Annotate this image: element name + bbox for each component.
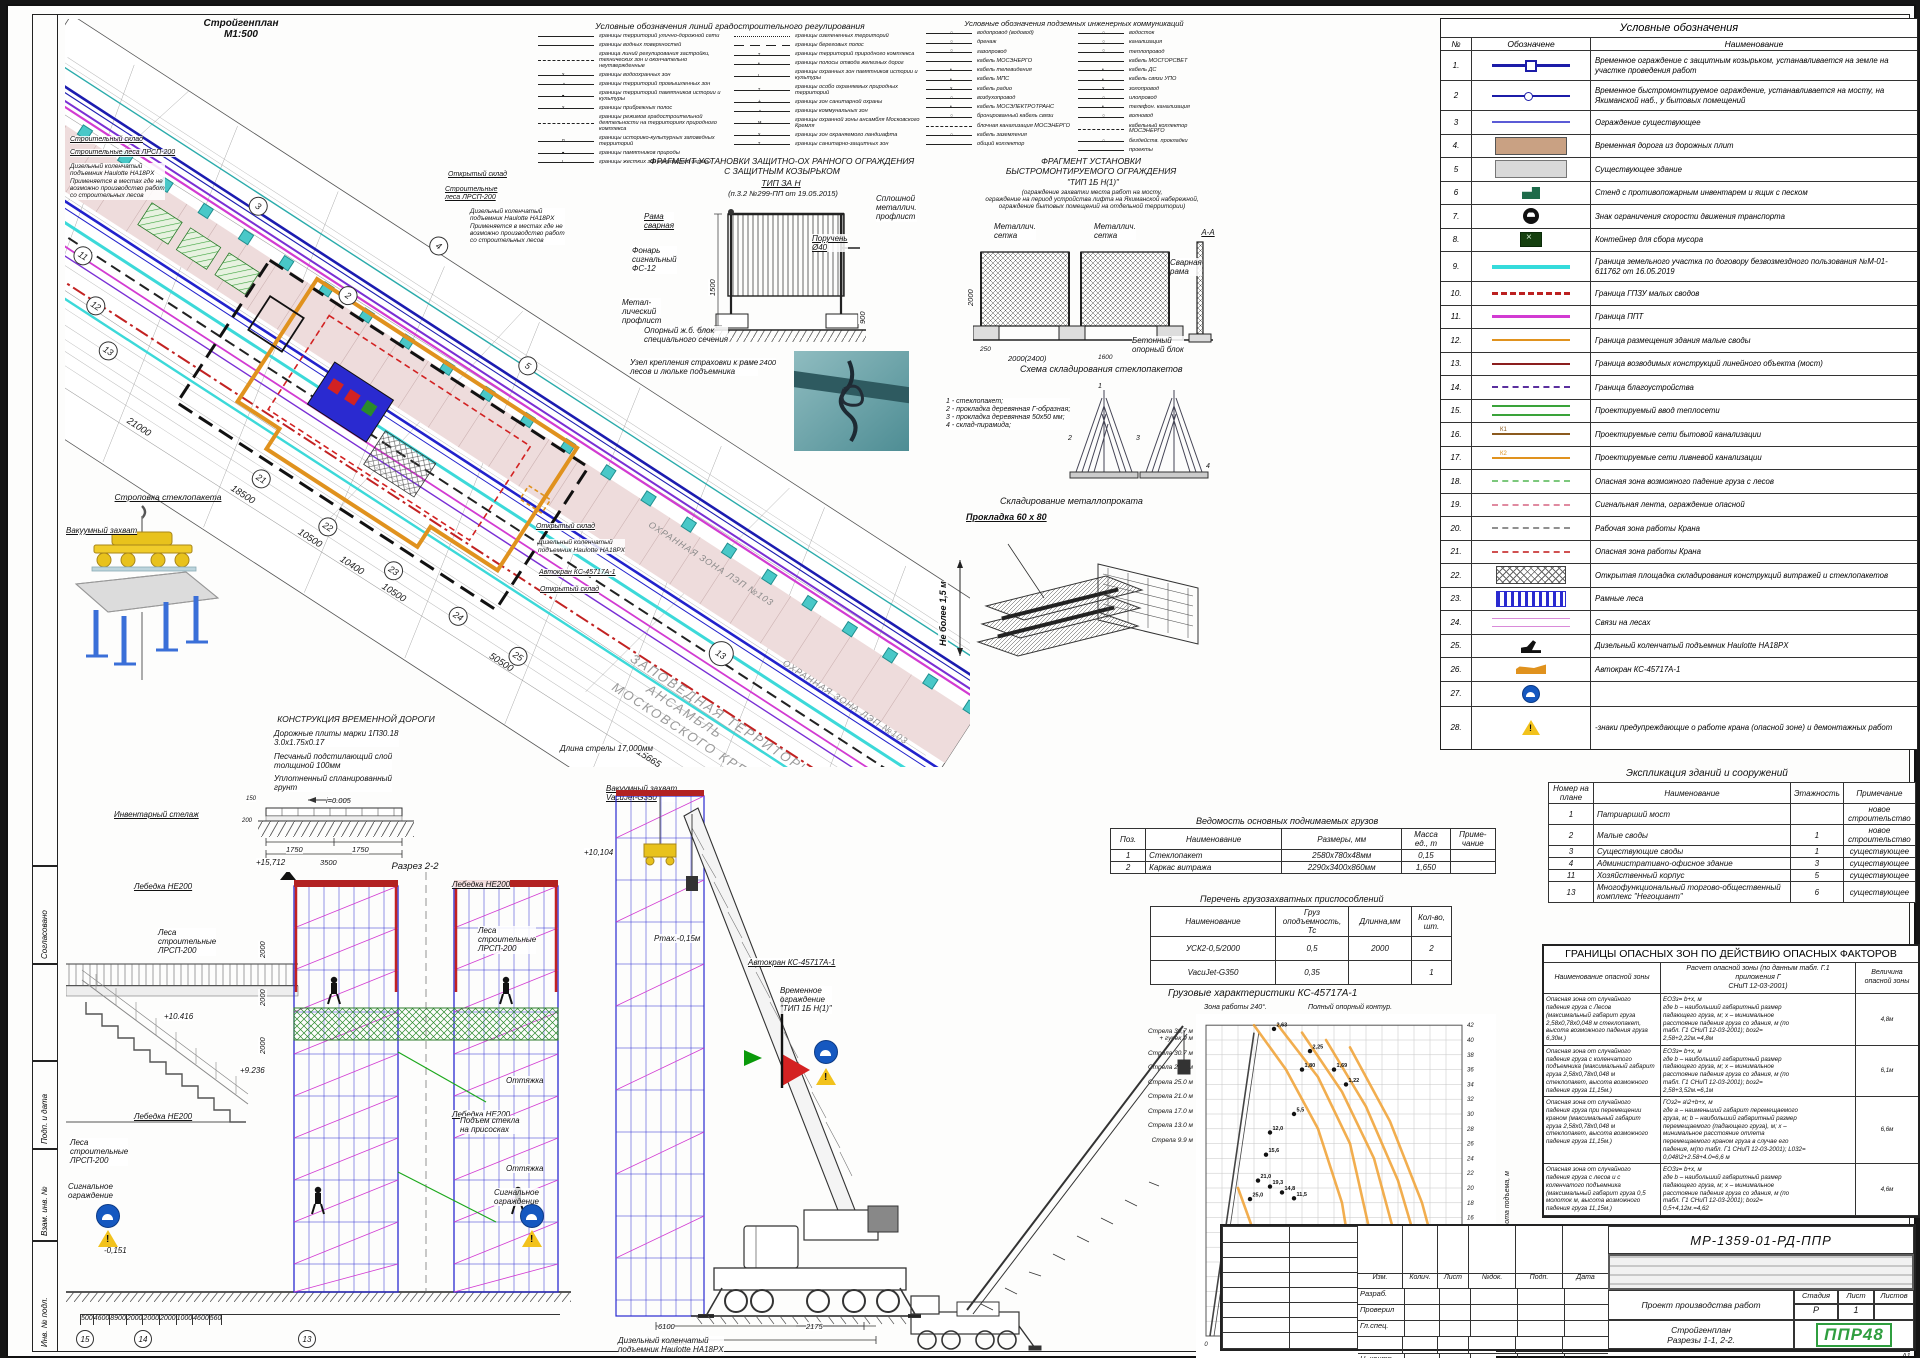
- ppe-sign-icon: [96, 1204, 120, 1228]
- legend-item: границы территорий памятников истории и …: [538, 91, 726, 103]
- sidebar-label: Инв. № подл.: [40, 1297, 49, 1347]
- legend-item: водосток: [1078, 31, 1222, 37]
- loads-col-header: Масса ед., т: [1402, 829, 1450, 850]
- legend-table-row: 4. Временная дорога из дорожных плит: [1441, 134, 1917, 158]
- axis-marker-15: 15: [76, 1330, 94, 1348]
- legend-table-row: 2 Временное быстромонтируемое ограждение…: [1441, 80, 1917, 110]
- explication-col-header: Наименование: [1594, 783, 1791, 804]
- legend-item: газопровод: [926, 50, 1070, 56]
- axis-marker-14: 14: [134, 1330, 152, 1348]
- road-d200: 200: [242, 818, 252, 824]
- crane-chart-subtitle2: Полный опорный контур.: [1308, 1004, 1392, 1011]
- line-sample-icon: [734, 45, 790, 46]
- legend-table-row: 13. Граница возводимых конструкций линей…: [1441, 352, 1917, 376]
- legend-table-row: 27.: [1441, 681, 1917, 706]
- stamp-sign-grid: Изм. Колич. Лист №док. Подп. Дата Разраб…: [1358, 1226, 1608, 1349]
- svg-text:32: 32: [1467, 1097, 1474, 1103]
- sheet-format: А1: [1902, 1353, 1911, 1358]
- line-sample-icon: [926, 33, 972, 34]
- stage-value: Р: [1794, 1304, 1838, 1320]
- celev-dim-6100: 6100: [658, 1322, 675, 1331]
- guy-label-1: Оттяжка: [506, 1076, 543, 1085]
- sheet-subtitle: Стройгенплан Разрезы 1-1, 2-2.: [1608, 1320, 1794, 1349]
- svg-text:1: 1: [1098, 383, 1102, 390]
- legend-table-row: 10. Граница ГПЗУ малых сводов: [1441, 281, 1917, 305]
- svg-text:26: 26: [1466, 1142, 1474, 1148]
- road-d1750b: 1750: [352, 845, 369, 854]
- rigging-col-header: Кол-во, шт.: [1412, 907, 1452, 937]
- glass-storage-notes: 1 - стеклопакет; 2 - прокладка деревянна…: [946, 398, 1070, 430]
- svg-text:18: 18: [1467, 1201, 1474, 1207]
- sidebar-cell-vzam: Взам. инв. №: [32, 1149, 58, 1241]
- legend-item: границы охранной зоны ансамбля Московско…: [734, 118, 922, 130]
- legend-item: границы охранных зон памятников истории …: [734, 70, 922, 82]
- legend-item: границы территорий природного комплекса: [734, 52, 922, 58]
- dim-value: 2000: [159, 1315, 176, 1325]
- title-block: Изм. Колич. Лист №док. Подп. Дата Разраб…: [1220, 1224, 1916, 1351]
- line-sample-icon: [1078, 117, 1124, 118]
- legend-symbol-icon: [1492, 457, 1570, 459]
- line-sample-icon: [538, 36, 594, 37]
- stamp-left-grid: [1222, 1226, 1358, 1349]
- legend-table-row: 7. Знак ограничения скорости движения тр…: [1441, 204, 1917, 228]
- ppe-sign-icon3: [814, 1040, 838, 1064]
- road-plates-label: Дорожные плиты марки 1П30.18 3.0х1.75х0.…: [274, 729, 399, 747]
- rmax-label: Рmax.-0,15м: [654, 934, 700, 943]
- legend-symbol-icon: [1523, 208, 1539, 224]
- callout-open-store-mid2: Открытый склад: [540, 586, 599, 594]
- table-row: УСК2-0,5/20000,520002: [1151, 937, 1452, 961]
- line-sample-icon: [538, 153, 594, 154]
- svg-text:1,69: 1,69: [1337, 1063, 1348, 1069]
- loads-col-header: Размеры, мм: [1282, 829, 1402, 850]
- table-row: 1Патриарший мостновое строительство: [1549, 804, 1916, 825]
- frag2-dim3: 2000: [966, 289, 975, 306]
- legend-table-row: 3 Ограждение существующее: [1441, 110, 1917, 134]
- winch-label-1: Лебедка НЕ200: [134, 882, 192, 891]
- legend-table-row: 12. Граница размещения здания малые свод…: [1441, 328, 1917, 352]
- sidebar-cell-inv: Инв. № подл.: [32, 1241, 58, 1352]
- frag2-frame-label: Сварная рама: [1170, 258, 1202, 276]
- table-row: VacuJet-G3500,351: [1151, 961, 1452, 985]
- table-row: 1Стеклопакет2580х780х48мм0,15: [1111, 850, 1496, 862]
- legend-item: водопровод (водовод): [926, 31, 1070, 37]
- callout-construction-store: Строительный склад: [70, 136, 143, 144]
- dim-value: 8900: [109, 1315, 126, 1325]
- line-sample-icon: [734, 102, 790, 103]
- line-sample-icon: [1078, 80, 1124, 81]
- sec22-dim2000c: 2000: [258, 1037, 267, 1054]
- legend-table-row: 28. -знаки предупреждающие о работе кран…: [1441, 706, 1917, 749]
- dim-value: 4600: [192, 1315, 209, 1325]
- line-sample-icon: [1078, 129, 1124, 130]
- line-sample-icon: [1078, 52, 1124, 53]
- frag1-note: (п.3.2 №299-ПП от 19.05.2015): [698, 189, 868, 198]
- level-low: +9.236: [240, 1066, 265, 1075]
- road-soil-label: Уплотненный спланированный грунт: [274, 774, 392, 792]
- danger-row: Опасная зона от случайного падения груза…: [1544, 994, 1918, 1046]
- danger-row: Опасная зона от случайного падения груза…: [1544, 1046, 1918, 1098]
- legend-table-row: 23. Рамные леса: [1441, 587, 1917, 611]
- line-sample-icon: [926, 144, 972, 145]
- line-sample-icon: [538, 123, 594, 124]
- rigging-table: НаименованиеГруз оподъемность, ТсДлинна,…: [1150, 906, 1452, 985]
- legend-item: границы озелененных территорий: [734, 34, 922, 40]
- frag1-solid-label: Сплошной металлич. профлист: [876, 194, 917, 222]
- level-bottom: -0,151: [104, 1246, 127, 1255]
- stage-header: Стадия: [1794, 1290, 1838, 1304]
- line-sample-icon: [734, 55, 790, 56]
- line-sample-icon: [1078, 107, 1124, 108]
- stamp-role: Разраб.: [1358, 1289, 1405, 1304]
- frag1-profile-label: Метал- лический профлист: [622, 298, 661, 326]
- rigging-col-header: Наименование: [1151, 907, 1276, 937]
- frag1-frame-label: Рама сварная: [644, 212, 674, 230]
- explication-title: Экспликация зданий и сооружений: [1626, 768, 1788, 779]
- frag2-mesh-label2: Металлич. сетка: [1094, 222, 1136, 240]
- sidebar-empty-cell: [32, 14, 58, 866]
- legend-table-row: 5 Существующее здание: [1441, 157, 1917, 181]
- line-sample-icon: [1078, 141, 1124, 142]
- svg-text:2,25: 2,25: [1313, 1045, 1324, 1051]
- line-sample-icon: [538, 162, 594, 163]
- legend-symbol-icon: [1522, 720, 1540, 735]
- callout-lift-left: Дизельный коленчатый подъемник Haulotte …: [70, 163, 165, 200]
- legend-item: бездейств. прокладки: [1078, 139, 1222, 145]
- line-sample-icon: [926, 98, 972, 99]
- legend-item: кабель МПС: [926, 77, 1070, 83]
- axis-marker-13: 13: [298, 1330, 316, 1348]
- legend-symbol-icon: [1522, 685, 1540, 703]
- legend-table-row: 26. Автокран КС-45717А-1: [1441, 657, 1917, 681]
- plan-title: СтройгенпланМ1:500: [176, 18, 306, 40]
- legend-item: кабель МОСЭНЕРГО: [926, 59, 1070, 65]
- legend-item: границы санитарно-защитных зон: [734, 142, 922, 148]
- table-row: 2Малые своды1новое строительство: [1549, 825, 1916, 846]
- legend-item: канализация: [1078, 40, 1222, 46]
- legend-symbol-icon: [1492, 504, 1570, 506]
- svg-text:34: 34: [1467, 1082, 1474, 1088]
- frag2-section-mark: А-А: [1188, 228, 1228, 237]
- legend-item: волновод: [1078, 114, 1222, 120]
- svg-text:20: 20: [1466, 1186, 1474, 1192]
- signal-fence-label-1: Сигнальное ограждение: [68, 1182, 113, 1200]
- crane-label: Автокран КС-45717А-1: [748, 958, 836, 967]
- symbols-legend-table: Условные обозначения № Обозначене Наимен…: [1440, 18, 1918, 750]
- legend-table-row: 11. Граница ППТ: [1441, 305, 1917, 329]
- legend-table-row: 18. Опасная зона возможного падение груз…: [1441, 469, 1917, 493]
- line-sample-icon: [734, 76, 790, 77]
- sheets-value: [1874, 1304, 1914, 1320]
- plan-scale: М1:500: [224, 29, 258, 40]
- line-sample-icon: [1078, 98, 1124, 99]
- line-sample-icon: [926, 80, 972, 81]
- svg-text:2: 2: [1067, 435, 1072, 442]
- rigging-col-header: Длинна,мм: [1349, 907, 1412, 937]
- svg-text:1,22: 1,22: [1349, 1078, 1360, 1084]
- legend-table-row: 25. Дизельный коленчатый подъемник Haulo…: [1441, 634, 1917, 658]
- legend-item: теплопровод: [1078, 50, 1222, 56]
- explication-table: Номер на планеНаименованиеЭтажностьПриме…: [1548, 782, 1916, 903]
- legend-symbol-icon: [1496, 566, 1566, 584]
- legend-symbol-icon: [1492, 363, 1570, 365]
- legend-item: границы прибрежных полос: [538, 106, 726, 112]
- table-row: 11Хозяйственный корпус5существующее: [1549, 870, 1916, 882]
- strap-node-caption: Узел крепления страховки к раме лесов и …: [630, 358, 758, 376]
- svg-text:19,3: 19,3: [1273, 1180, 1284, 1186]
- callout-crane-mid: Автокран КС-45717А-1: [539, 569, 616, 577]
- legend-table-row: 21. Опасная зона работы Крана: [1441, 540, 1917, 564]
- svg-text:3: 3: [1136, 435, 1140, 442]
- line-sample-icon: [926, 70, 972, 71]
- svg-text:25,0: 25,0: [1253, 1193, 1264, 1199]
- callout-lift-right: Дизельный коленчатый подъемник Haulotte …: [470, 208, 565, 245]
- legend-item: кабель МОСГОРСВЕТ: [1078, 59, 1222, 65]
- legend-item: границы полосы отвода железных дорог: [734, 61, 922, 67]
- line-sample-icon: [734, 64, 790, 65]
- legend-item: кабель заземления: [926, 133, 1070, 139]
- svg-text:15,6: 15,6: [1269, 1148, 1280, 1154]
- frag1-type: ТИП ЗА Н: [736, 178, 826, 188]
- sheet-header: Лист: [1838, 1290, 1874, 1304]
- loads-table-title: Ведомость основных поднимаемых грузов: [1196, 816, 1378, 826]
- frag1-title: ФРАГМЕНТ УСТАНОВКИ ЗАЩИТНО-ОХ РАННОГО ОГ…: [616, 156, 948, 176]
- legend-item: бронированный кабель связи: [926, 114, 1070, 120]
- legend-table-header: № Обозначене Наименование: [1441, 37, 1917, 50]
- sec22-dim2000a: 2000: [258, 941, 267, 958]
- strap-node-photo: [794, 351, 909, 451]
- sheets-header: Листов: [1874, 1290, 1914, 1304]
- legend-item: границы водных поверхностей: [538, 43, 726, 49]
- legend-item: границы зон охраняемого ландшафта: [734, 133, 922, 139]
- crane-chart-subtitle: Зона работы 240°.: [1204, 1004, 1267, 1011]
- dim-value: 4600: [93, 1315, 110, 1325]
- legend-item: границы коммунальных зон: [734, 109, 922, 115]
- section-dim-chain: 5004600890020002000200010004600560: [80, 1314, 560, 1325]
- dim-value: 500: [80, 1315, 93, 1325]
- legend-symbol-icon: [1492, 265, 1570, 269]
- line-sample-icon: [538, 84, 594, 85]
- legend-table-row: 17. Проектируемые сети ливневой канализа…: [1441, 446, 1917, 470]
- svg-text:12,0: 12,0: [1273, 1126, 1284, 1132]
- legend-symbol-icon: [1496, 591, 1566, 607]
- utilities-legend: Условные обозначения подземных инженерны…: [926, 19, 1222, 157]
- danger-title: ГРАНИЦЫ ОПАСНЫХ ЗОН ПО ДЕЙСТВИЮ ОПАСНЫХ …: [1544, 946, 1918, 963]
- callout-lift-mid: Дизельный коленчатый подъемник Haulotte …: [538, 539, 625, 554]
- frag2-dim2: 250: [980, 346, 991, 353]
- line-sample-icon: [1078, 33, 1124, 34]
- legend-table-title: Условные обозначения: [1441, 19, 1917, 37]
- legend-item: воздухопровод: [926, 96, 1070, 102]
- temp-fence-label: Временное ограждение "ТИП 1Б Н(1)": [780, 986, 832, 1014]
- winch-label-3: Лебедка НЕ200: [134, 1112, 192, 1121]
- svg-text:36: 36: [1467, 1068, 1474, 1074]
- warning-sign-icon2: [522, 1230, 542, 1247]
- svg-text:11,5: 11,5: [1297, 1192, 1307, 1198]
- legend-item: границы водоохранных зон: [538, 73, 726, 79]
- table-row: 13Многофункциональный торгово-общественн…: [1549, 882, 1916, 903]
- callout-open-store-right: Открытый склад: [448, 171, 507, 179]
- road-slope: i=0.005: [326, 796, 351, 805]
- legend-item: кабель радио: [926, 87, 1070, 93]
- legend-symbol-icon: [1492, 527, 1570, 529]
- legend-item: дренаж: [926, 40, 1070, 46]
- document-number: МР-1359-01-РД-ППР: [1608, 1226, 1914, 1254]
- line-sample-icon: [1078, 150, 1124, 151]
- danger-row: Опасная зона от случайного падения груза…: [1544, 1164, 1918, 1216]
- sidebar-label: Подп. и дата: [40, 1094, 49, 1144]
- line-sample-icon: [734, 90, 790, 91]
- legend-table-row: 24. Связи на лесах: [1441, 610, 1917, 634]
- legend-table-row: 20. Рабочая зона работы Крана: [1441, 516, 1917, 540]
- scaffold-label-2: Леса строительные ЛРСП-200: [478, 926, 536, 954]
- legend-item: илопровод: [1078, 96, 1222, 102]
- crane-elevation-drawing: [596, 758, 921, 1351]
- explication-col-header: Номер на плане: [1549, 783, 1594, 804]
- svg-text:38: 38: [1467, 1053, 1474, 1059]
- level-top: +15,712: [256, 858, 285, 867]
- dim-value: 1000: [176, 1315, 193, 1325]
- legend-symbol-icon: [1492, 405, 1570, 416]
- legend-symbol-icon: [1492, 315, 1570, 318]
- loads-col-header: Наименование: [1146, 829, 1282, 850]
- strapping-title: Строповка стеклопакета: [88, 492, 248, 502]
- explication-col-header: Примечание: [1843, 783, 1915, 804]
- frag2-dim4: 1600: [1098, 354, 1112, 361]
- line-sample-icon: [926, 52, 972, 53]
- scaffold-label-3: Леса строительные ЛРСП-200: [70, 1138, 128, 1166]
- svg-text:40: 40: [1467, 1038, 1474, 1044]
- legend-item: кабель телевидения: [926, 68, 1070, 74]
- danger-zones-table: ГРАНИЦЫ ОПАСНЫХ ЗОН ПО ДЕЙСТВИЮ ОПАСНЫХ …: [1542, 944, 1920, 1218]
- stamp-col: Изм.: [1358, 1274, 1403, 1288]
- legend-item: проекты: [1078, 148, 1222, 154]
- legend-table-row: 1. Временное ограждение с защитным козыр…: [1441, 50, 1917, 80]
- metal-storage-title: Складирование металлопроката: [1000, 496, 1143, 506]
- line-sample-icon: [538, 108, 594, 109]
- line-sample-icon: [538, 96, 594, 97]
- legend-symbol-icon: [1516, 664, 1546, 674]
- sidebar-label: Взам. инв. №: [40, 1187, 49, 1236]
- ppe-sign-icon2: [520, 1204, 544, 1228]
- svg-text:2,63: 2,63: [1277, 1022, 1288, 1028]
- table-row: 4Административно-офисное здание3существу…: [1549, 858, 1916, 870]
- legend-table-row: 16. Проектируемые сети бытовой канализац…: [1441, 422, 1917, 446]
- legend-symbol-icon: [1492, 551, 1570, 553]
- legend-table-row: 14. Граница благоустройства: [1441, 375, 1917, 399]
- line-sample-icon: [1078, 89, 1124, 90]
- loads-col-header: Поз.: [1111, 829, 1146, 850]
- diesel-lift-label: Дизельный коленчатый подъемник Haulotte …: [618, 1336, 724, 1354]
- danger-row: Опасная зона от случайного падения груза…: [1544, 1097, 1918, 1164]
- callout-open-store-mid: Открытый склад: [536, 523, 595, 531]
- line-sample-icon: [926, 117, 972, 118]
- regulation-lines-legend: Условные обозначения линий градостроител…: [538, 21, 922, 169]
- legend-symbol-icon: [1495, 137, 1567, 155]
- sidebar-cell-signdate: Подп. и дата: [32, 1061, 58, 1149]
- crane-chart-title: Грузовые характеристики КС-45717А-1: [1168, 988, 1357, 999]
- legend-symbol-icon: [1492, 386, 1570, 388]
- road-d1750a: 1750: [286, 845, 303, 854]
- legend-symbol-icon: [1492, 480, 1570, 482]
- svg-text:4: 4: [1206, 463, 1210, 470]
- legend-item: границы береговых полос: [734, 43, 922, 49]
- legend-table-row: 8. Контейнер для сбора мусора: [1441, 228, 1917, 252]
- sidebar-cell-approved: Согласовано: [32, 866, 58, 964]
- svg-text:16: 16: [1467, 1216, 1474, 1222]
- level-mid: +10.416: [164, 1012, 193, 1021]
- legend-table-row: 15. Проектируемый ввод теплосети: [1441, 399, 1917, 423]
- svg-text:30: 30: [1467, 1112, 1474, 1118]
- legend-table-row: 6 Стенд с противопожарным инвентарем и я…: [1441, 181, 1917, 205]
- legend-symbol-icon: [1492, 292, 1570, 295]
- legend-symbol-icon: [1520, 232, 1542, 247]
- road-detail-title: КОНСТРУКЦИЯ ВРЕМЕННОЙ ДОРОГИ: [246, 714, 466, 724]
- line-sample-icon: [734, 144, 790, 145]
- drawing-sheet: Согласовано Подп. и дата Взам. инв. № Ин…: [6, 4, 1916, 1358]
- suction-label: Подъем стекла на присосках: [460, 1116, 520, 1134]
- svg-text:42: 42: [1467, 1023, 1474, 1029]
- legend-item: границы территорий промышленных зон: [538, 82, 726, 88]
- frag2-drawing: [973, 238, 1213, 350]
- legend-symbol-icon: [1492, 433, 1570, 435]
- legend-title: Условные обозначения линий градостроител…: [538, 21, 922, 31]
- legend-item: границы особо охраняемых природных терри…: [734, 85, 922, 97]
- frag2-note: (ограждение захватки места работ на мост…: [956, 189, 1228, 210]
- pp r48-logo: ППР48: [1816, 1323, 1892, 1347]
- section22-title: Разрез 2-2: [370, 861, 460, 872]
- svg-text:1,80: 1,80: [1305, 1063, 1316, 1069]
- explication-col-header: Этажность: [1791, 783, 1844, 804]
- dim-value: 560: [209, 1315, 223, 1325]
- legend-item: кабельный коллектор МОСЭНЕРГО: [1078, 124, 1222, 136]
- legend-symbol-icon: [1492, 618, 1570, 627]
- legend-symbol-icon: [1492, 64, 1570, 67]
- legend-item: кабель связи УПО: [1078, 77, 1222, 83]
- svg-text:14,8: 14,8: [1285, 1186, 1296, 1192]
- frag2-dim1: 2000(2400): [1008, 354, 1046, 363]
- scaffold-label-1: Леса строительные ЛРСП-200: [158, 928, 216, 956]
- legend-table-row: 9. Граница земельного участка по договор…: [1441, 251, 1917, 281]
- legend-item: телефон. канализация: [1078, 105, 1222, 111]
- line-sample-icon: [734, 36, 790, 37]
- legend-item: границы территорий улично-дорожной сети: [538, 34, 726, 40]
- line-sample-icon: [734, 111, 790, 112]
- dim-value: 2000: [126, 1315, 143, 1325]
- callout-scaffold-left: Строительные леса ЛРСП-200: [70, 149, 175, 157]
- line-sample-icon: [538, 75, 594, 76]
- line-sample-icon: [926, 61, 972, 62]
- crane-sketch: [901, 1014, 1201, 1352]
- legend-symbol-icon: [1492, 121, 1570, 123]
- frag2-mesh-label1: Металлич. сетка: [994, 222, 1036, 240]
- loads-col-header: Приме- чание: [1450, 829, 1495, 850]
- line-sample-icon: [926, 107, 972, 108]
- frag1-dim-900: 900: [858, 311, 867, 324]
- legend-symbol-icon: [1495, 160, 1567, 178]
- glass-storage-title: Схема складирования стеклопакетов: [1020, 364, 1183, 374]
- metal-hmax-label: Не более 1,5 м: [938, 581, 948, 646]
- metal-pad-label: Прокладка 60 х 80: [966, 512, 1047, 522]
- danger-header: Наименование опасной зоны Расчет опасной…: [1544, 963, 1918, 994]
- line-sample-icon: [538, 45, 594, 46]
- warning-sign-icon3: [816, 1068, 836, 1085]
- line-sample-icon: [926, 135, 972, 136]
- drawing-page: Согласовано Подп. и дата Взам. инв. № Ин…: [0, 0, 1920, 1358]
- road-sand-label: Песчаный подстилающий слой толщиной 100м…: [274, 752, 392, 770]
- boom-length-note: Длина стрелы 17,000мм: [560, 744, 653, 753]
- line-sample-icon: [1078, 61, 1124, 62]
